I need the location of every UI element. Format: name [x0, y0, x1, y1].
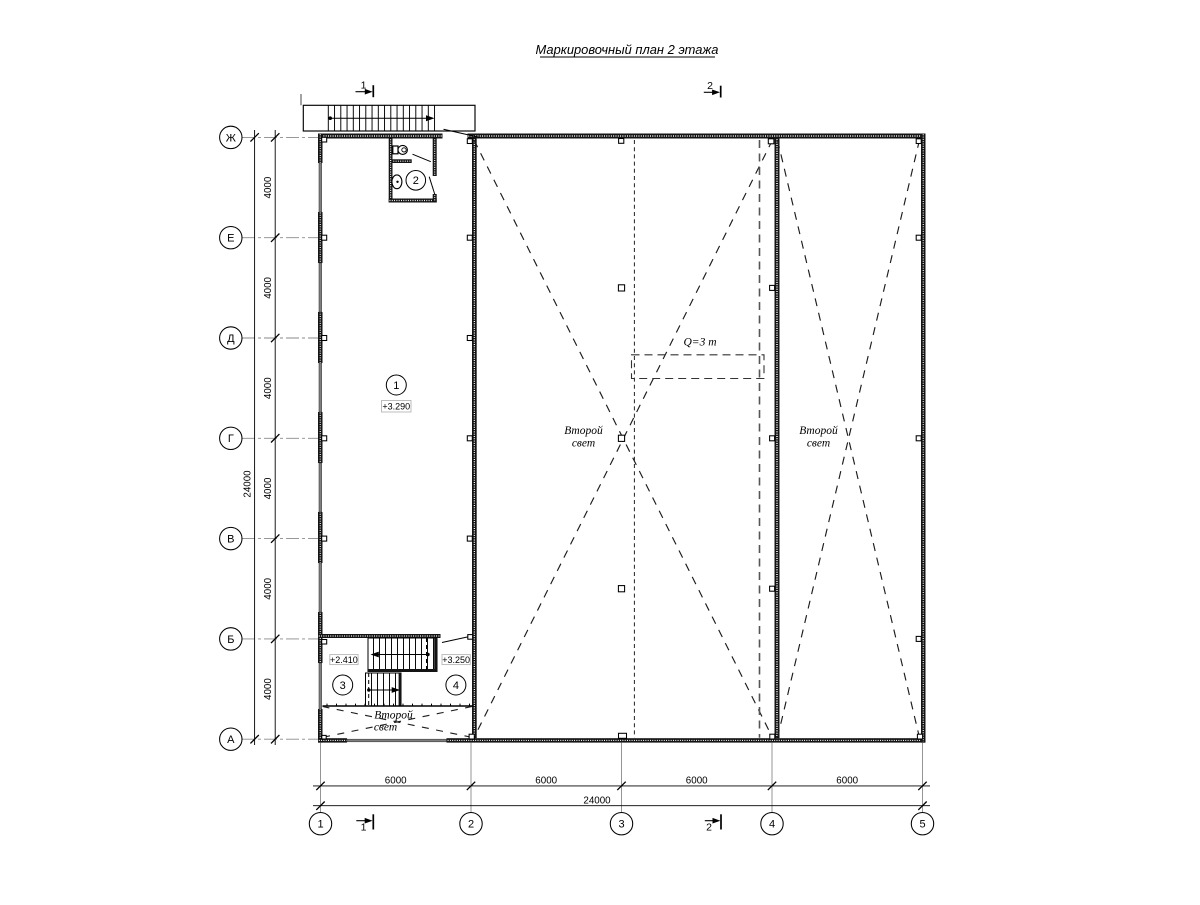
svg-text:4000: 4000	[263, 377, 274, 399]
svg-text:24000: 24000	[583, 795, 611, 806]
svg-text:свет: свет	[572, 438, 595, 450]
svg-text:+3.290: +3.290	[382, 402, 410, 412]
svg-text:2: 2	[706, 822, 712, 834]
svg-text:Второй: Второй	[374, 709, 413, 722]
svg-text:В: В	[227, 534, 234, 546]
svg-text:24000: 24000	[243, 470, 254, 498]
svg-text:5: 5	[919, 819, 925, 831]
svg-text:4: 4	[453, 680, 459, 692]
svg-text:Ж: Ж	[226, 132, 236, 144]
svg-text:4000: 4000	[263, 276, 274, 298]
svg-text:Е: Е	[227, 233, 234, 245]
svg-text:4000: 4000	[263, 477, 274, 499]
svg-text:6000: 6000	[385, 776, 407, 787]
svg-text:6000: 6000	[836, 776, 858, 787]
svg-text:1: 1	[361, 822, 367, 834]
svg-text:1: 1	[393, 380, 399, 392]
svg-text:4: 4	[769, 819, 775, 831]
svg-text:4000: 4000	[263, 176, 274, 198]
svg-text:Второй: Второй	[564, 424, 603, 437]
svg-text:Маркировочный план 2 этажа: Маркировочный план 2 этажа	[536, 42, 719, 57]
svg-text:1: 1	[317, 819, 323, 831]
svg-text:+2.410: +2.410	[330, 655, 358, 665]
svg-text:Q=3 т: Q=3 т	[684, 337, 717, 349]
svg-text:Второй: Второй	[799, 424, 838, 437]
svg-text:6000: 6000	[686, 776, 708, 787]
svg-text:+3.250: +3.250	[442, 655, 470, 665]
svg-text:свет: свет	[807, 438, 830, 450]
svg-text:4000: 4000	[263, 678, 274, 700]
svg-text:3: 3	[340, 680, 346, 692]
svg-text:Д: Д	[227, 333, 235, 345]
svg-text:3: 3	[618, 819, 624, 831]
svg-text:6000: 6000	[535, 776, 557, 787]
svg-text:А: А	[227, 734, 235, 746]
svg-text:2: 2	[468, 819, 474, 831]
svg-text:2: 2	[413, 175, 419, 187]
svg-text:4000: 4000	[263, 577, 274, 599]
svg-text:свет: свет	[374, 722, 397, 734]
svg-text:Б: Б	[227, 634, 234, 646]
svg-text:Г: Г	[228, 433, 234, 445]
